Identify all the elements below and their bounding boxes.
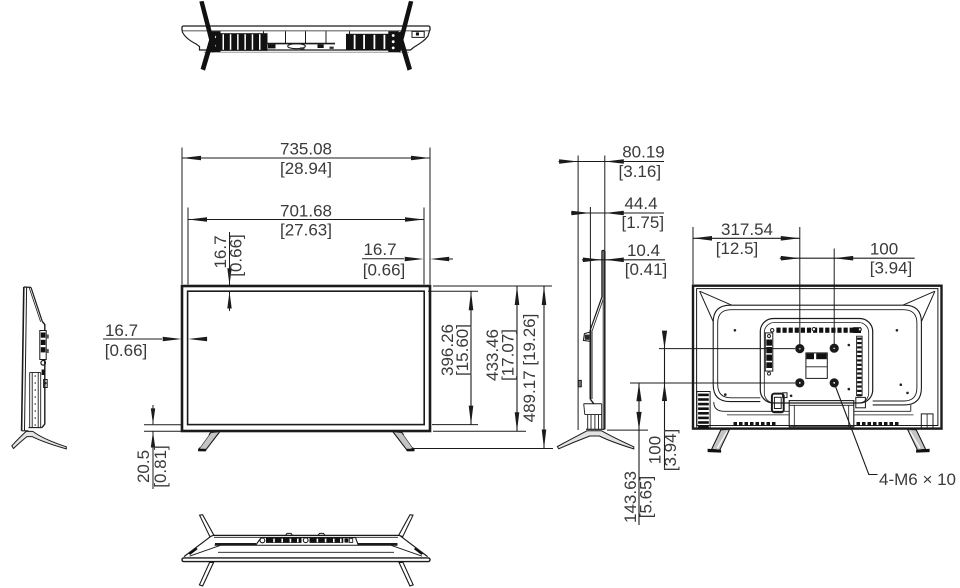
svg-text:[12.5]: [12.5] [716, 239, 759, 258]
svg-text:4-M6 × 10: 4-M6 × 10 [879, 470, 956, 489]
svg-text:[3.16]: [3.16] [619, 162, 662, 181]
svg-text:100: 100 [870, 239, 898, 258]
svg-text:317.54: 317.54 [721, 220, 773, 239]
svg-text:[17.07]: [17.07] [498, 329, 517, 381]
svg-text:735.08: 735.08 [280, 140, 332, 159]
svg-text:[3.94]: [3.94] [870, 258, 913, 277]
svg-text:[3.94]: [3.94] [661, 429, 680, 472]
svg-text:[5.65]: [5.65] [636, 476, 655, 519]
svg-text:[0.81]: [0.81] [151, 445, 170, 488]
svg-text:80.19: 80.19 [622, 143, 665, 162]
svg-text:[28.94]: [28.94] [280, 159, 332, 178]
svg-text:[1.75]: [1.75] [622, 213, 665, 232]
svg-text:44.4: 44.4 [624, 194, 657, 213]
svg-text:[0.66]: [0.66] [363, 260, 406, 279]
svg-text:701.68: 701.68 [280, 201, 332, 220]
svg-text:16.7: 16.7 [363, 240, 396, 259]
svg-text:[27.63]: [27.63] [280, 220, 332, 239]
svg-text:[0.66]: [0.66] [226, 234, 245, 277]
svg-text:16.7: 16.7 [105, 321, 138, 340]
svg-text:489.17 [19.26]: 489.17 [19.26] [520, 314, 539, 423]
svg-text:10.4: 10.4 [627, 241, 660, 260]
svg-text:[15.60]: [15.60] [453, 324, 472, 376]
svg-text:[0.66]: [0.66] [105, 341, 148, 360]
svg-text:[0.41]: [0.41] [625, 260, 668, 279]
